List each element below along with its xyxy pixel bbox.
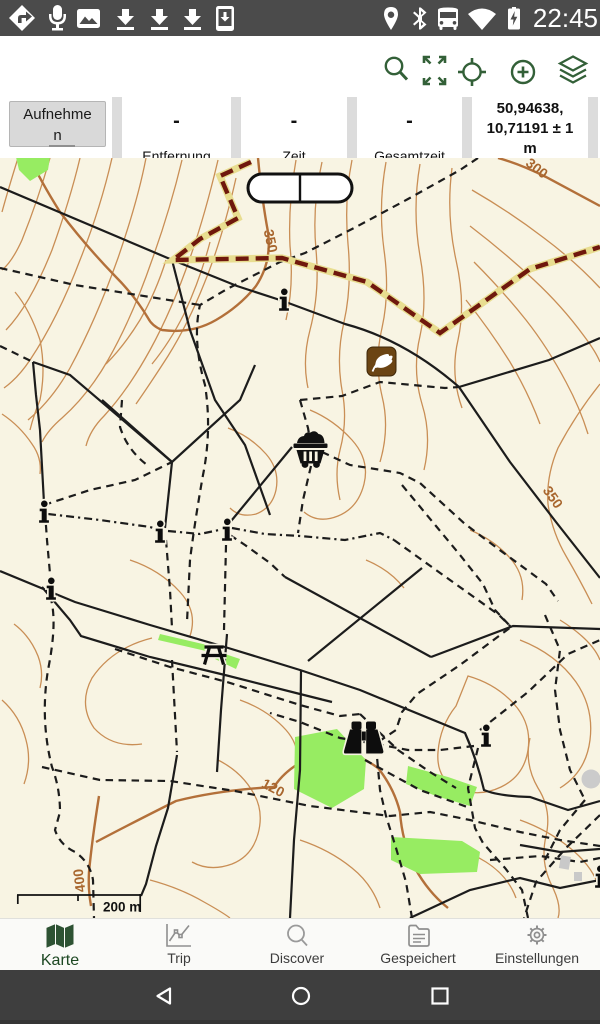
svg-text:Einstellungen: Einstellungen [495, 950, 579, 966]
svg-text:400: 400 [70, 868, 89, 893]
svg-text:Gespeichert: Gespeichert [380, 950, 456, 966]
svg-text:200 m: 200 m [103, 900, 141, 915]
svg-text:22:45: 22:45 [533, 3, 598, 33]
svg-text:Trip: Trip [167, 950, 191, 966]
svg-text:Karte: Karte [41, 952, 79, 969]
svg-text:Discover: Discover [270, 950, 325, 966]
